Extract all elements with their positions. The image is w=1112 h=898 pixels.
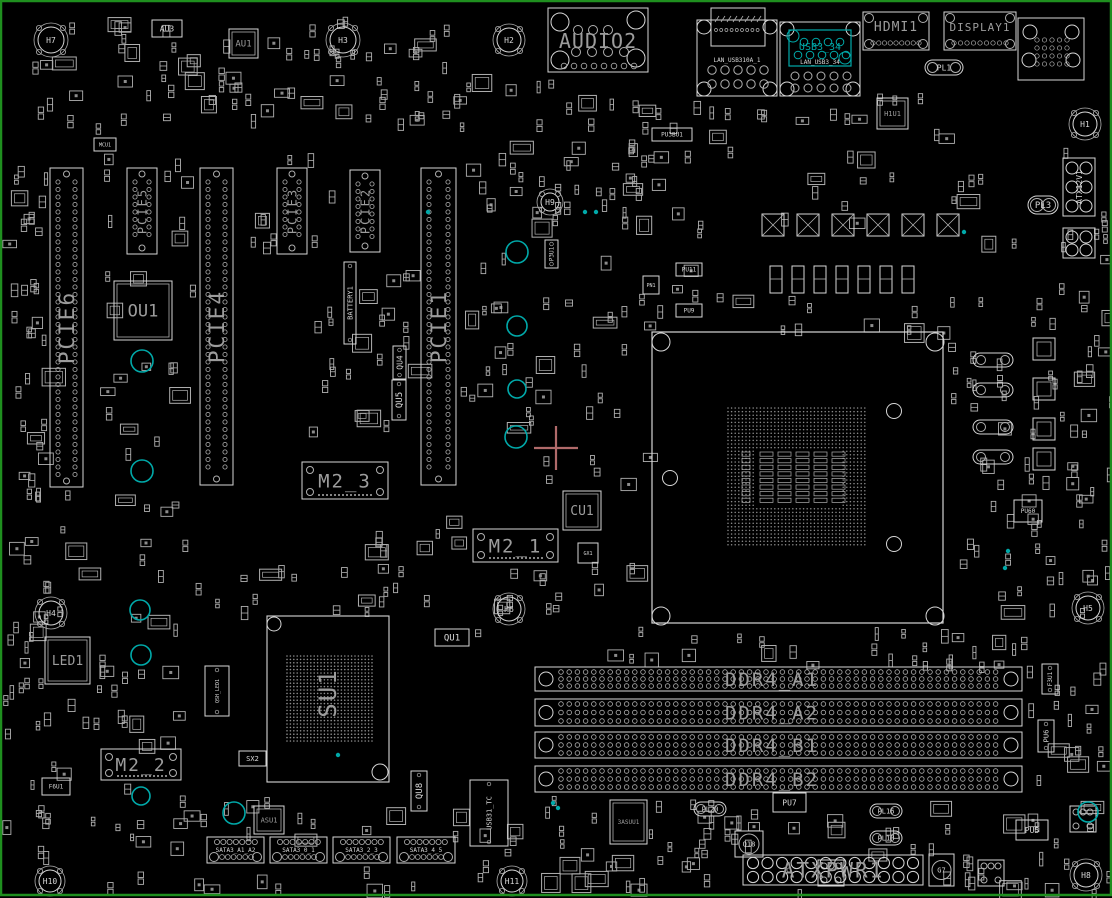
mount-hole-h9: H9 [537,189,563,215]
svg-text:F6U1: F6U1 [49,784,64,791]
svg-text:PU6: PU6 [1043,730,1051,743]
svg-text:DDR4_A1: DDR4_A1 [725,669,819,691]
svg-text:M2_3: M2_3 [318,470,372,492]
mount-hole-h11: H11 [497,866,527,896]
svg-text:AU1: AU1 [235,40,251,50]
svg-text:M2_1: M2_1 [489,535,543,557]
svg-text:DISPLAY1: DISPLAY1 [950,21,1011,34]
svg-text:ATX12V1: ATX12V1 [1075,170,1084,204]
svg-text:DDR4_B1: DDR4_B1 [725,735,819,757]
svg-text:F3U1: F3U1 [1047,671,1054,686]
svg-text:PU11: PU11 [682,267,697,274]
svg-text:3ASUU1: 3ASUU1 [618,819,640,826]
svg-text:PCIE1: PCIE1 [427,290,451,363]
svg-text:BATTERY1: BATTERY1 [347,286,355,320]
svg-text:PL1: PL1 [937,63,952,72]
svg-text:SU1: SU1 [314,668,342,717]
svg-text:QU5: QU5 [395,392,405,408]
svg-text:SATA3_A1_A2: SATA3_A1_A2 [216,847,256,854]
svg-text:P3U1: P3U1 [549,246,556,261]
svg-text:M2_2: M2_2 [115,755,166,776]
svg-text:PN1: PN1 [646,283,655,289]
svg-text:USB31_TC: USB31_TC [486,796,494,830]
svg-text:PCIE3: PCIE3 [285,188,299,234]
svg-text:LAN_USB3_34: LAN_USB3_34 [800,59,840,66]
svg-text:SX2: SX2 [246,755,259,763]
pcb-silkscreen-diagram: PCIE6PCIE5PCIE4PCIE3PCIE2PCIE1OU1MCU1AU3… [0,0,1112,898]
svg-text:PU60: PU60 [1021,508,1036,515]
svg-text:PCIE6: PCIE6 [55,291,79,364]
svg-text:QU1: QU1 [444,634,460,644]
svg-text:PCIE5: PCIE5 [135,188,149,234]
svg-text:MCU1: MCU1 [99,142,111,148]
svg-text:SATA3_0_1: SATA3_0_1 [282,847,315,854]
mount-hole-h10: H10 [35,866,65,896]
svg-text:AU3: AU3 [160,24,175,33]
svg-text:AUDIO2: AUDIO2 [559,29,637,53]
svg-text:ASU1: ASU1 [261,817,278,825]
svg-text:PL3: PL3 [1035,201,1051,211]
svg-text:HDMI1: HDMI1 [874,20,918,35]
svg-text:GX1: GX1 [583,551,592,557]
svg-text:QU4: QU4 [395,355,404,370]
svg-text:CU1: CU1 [570,504,593,519]
svg-text:DDR4_A2: DDR4_A2 [725,702,819,724]
svg-text:QSH_LED1: QSH_LED1 [215,679,221,703]
svg-text:OU1: OU1 [128,302,159,322]
svg-text:PCIE4: PCIE4 [205,290,229,363]
svg-text:PU9: PU9 [684,308,695,315]
svg-text:LAN_USB310A_1: LAN_USB310A_1 [714,57,761,64]
svg-text:USB3_34: USB3_34 [799,42,841,53]
svg-text:DDR4_B2: DDR4_B2 [725,769,819,791]
svg-text:QU8: QU8 [415,783,425,799]
boardview-canvas: PCIE6PCIE5PCIE4PCIE3PCIE2PCIE1OU1MCU1AU3… [0,0,1112,898]
svg-text:PU3BU1: PU3BU1 [661,132,683,139]
svg-text:LED1: LED1 [52,654,83,669]
svg-text:H1U1: H1U1 [884,110,901,118]
svg-text:PCIE2: PCIE2 [358,188,372,234]
